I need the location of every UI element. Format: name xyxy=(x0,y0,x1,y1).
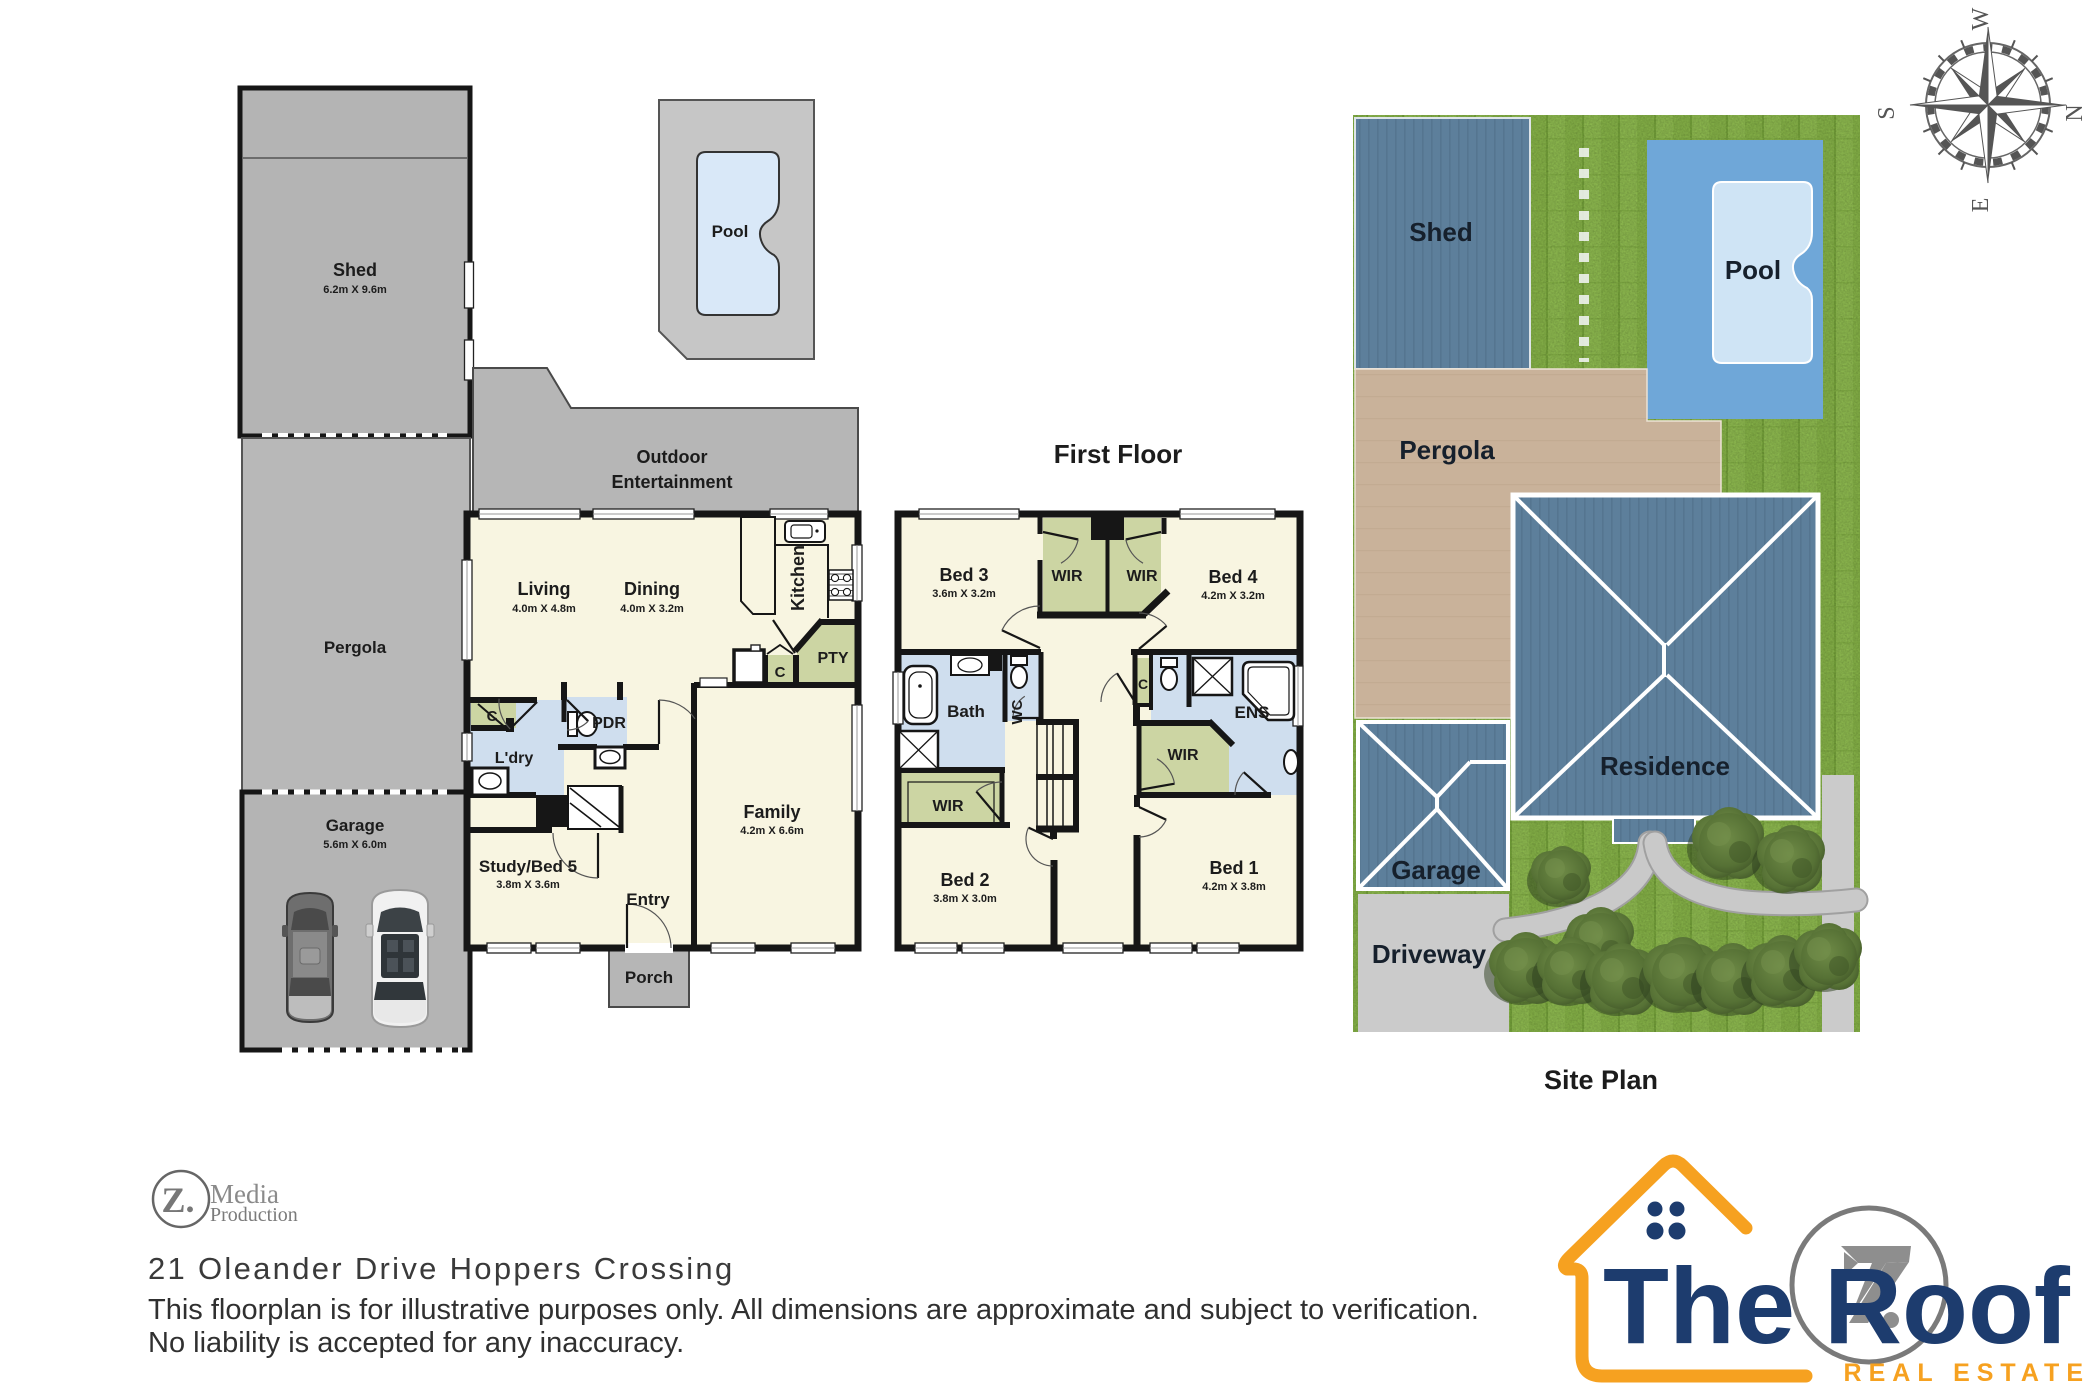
svg-text:4.2m X 3.8m: 4.2m X 3.8m xyxy=(1202,881,1266,893)
svg-text:3.8m X 3.0m: 3.8m X 3.0m xyxy=(933,893,997,905)
svg-text:REAL ESTATE: REAL ESTATE xyxy=(1844,1359,2090,1387)
svg-text:WC: WC xyxy=(1009,699,1026,724)
svg-text:4.0m X 4.8m: 4.0m X 4.8m xyxy=(512,603,576,615)
svg-text:PTY: PTY xyxy=(817,650,848,667)
svg-text:Z.: Z. xyxy=(161,1180,194,1220)
svg-text:First Floor: First Floor xyxy=(1054,439,1183,469)
svg-text:Outdoor: Outdoor xyxy=(637,447,708,467)
svg-text:Shed: Shed xyxy=(333,260,377,280)
svg-text:Porch: Porch xyxy=(625,968,673,987)
svg-text:Bed 1: Bed 1 xyxy=(1209,858,1258,878)
svg-text:3.6m X 3.2m: 3.6m X 3.2m xyxy=(932,588,996,600)
svg-text:WIR: WIR xyxy=(1126,568,1158,585)
svg-text:4.0m X 3.2m: 4.0m X 3.2m xyxy=(620,603,684,615)
svg-text:Production: Production xyxy=(210,1204,298,1226)
svg-text:Shed: Shed xyxy=(1409,217,1473,247)
svg-text:3.8m X 3.6m: 3.8m X 3.6m xyxy=(496,879,560,891)
svg-text:The: The xyxy=(1603,1245,1795,1366)
svg-text:Bed 3: Bed 3 xyxy=(939,565,988,585)
svg-text:PDR: PDR xyxy=(592,715,626,732)
svg-text:Dining: Dining xyxy=(624,579,680,599)
svg-text:Pergola: Pergola xyxy=(324,638,387,657)
svg-text:C: C xyxy=(487,708,498,725)
svg-text:6.2m X 9.6m: 6.2m X 9.6m xyxy=(323,284,387,296)
svg-text:4.2m X 6.6m: 4.2m X 6.6m xyxy=(740,825,804,837)
svg-text:N: N xyxy=(2062,104,2088,121)
svg-text:4.2m X 3.2m: 4.2m X 3.2m xyxy=(1201,590,1265,602)
svg-text:This floorplan is for illustra: This floorplan is for illustrative purpo… xyxy=(148,1294,1479,1326)
svg-text:No liability is accepted for a: No liability is accepted for any inaccur… xyxy=(148,1327,684,1359)
svg-text:Garage: Garage xyxy=(326,816,385,835)
svg-text:Driveway: Driveway xyxy=(1372,939,1487,969)
svg-text:Site Plan: Site Plan xyxy=(1544,1065,1658,1095)
svg-text:Roof: Roof xyxy=(1824,1245,2071,1366)
svg-text:WIR: WIR xyxy=(932,798,964,815)
svg-text:WIR: WIR xyxy=(1167,747,1199,764)
svg-text:L'dry: L'dry xyxy=(495,750,534,767)
svg-text:ENS: ENS xyxy=(1235,703,1270,722)
svg-text:Study/Bed 5: Study/Bed 5 xyxy=(479,857,577,876)
svg-text:Entry: Entry xyxy=(626,890,670,909)
svg-text:Pool: Pool xyxy=(1725,255,1781,285)
svg-text:E: E xyxy=(1968,198,1994,213)
svg-text:Bed 2: Bed 2 xyxy=(940,870,989,890)
svg-text:Entertainment: Entertainment xyxy=(611,472,732,492)
svg-text:Pool: Pool xyxy=(712,222,749,241)
svg-text:21 Oleander Drive Hoppers Cros: 21 Oleander Drive Hoppers Crossing xyxy=(148,1251,735,1286)
svg-text:5.6m X 6.0m: 5.6m X 6.0m xyxy=(323,839,387,851)
svg-text:Kitchen: Kitchen xyxy=(788,545,808,611)
svg-text:Garage: Garage xyxy=(1391,855,1481,885)
svg-text:Bed 4: Bed 4 xyxy=(1208,567,1257,587)
svg-text:W: W xyxy=(1968,7,1994,30)
svg-text:Residence: Residence xyxy=(1600,751,1730,781)
svg-text:Family: Family xyxy=(743,802,800,822)
svg-text:WIR: WIR xyxy=(1051,568,1083,585)
svg-text:Pergola: Pergola xyxy=(1399,435,1495,465)
svg-text:Living: Living xyxy=(518,579,571,599)
svg-text:C: C xyxy=(775,664,786,681)
svg-text:Bath: Bath xyxy=(947,702,985,721)
svg-text:S: S xyxy=(1874,106,1900,119)
svg-text:C: C xyxy=(1138,676,1148,692)
